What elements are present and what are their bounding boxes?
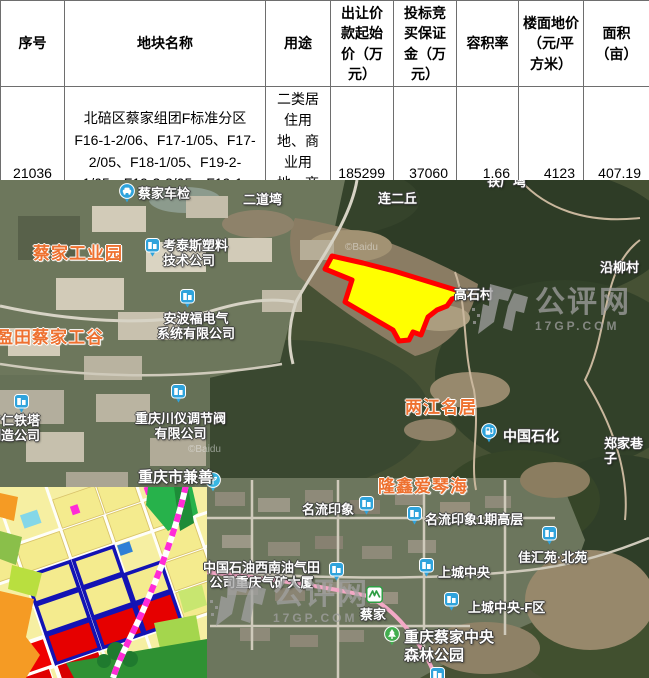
cell-plot-ratio: 1.66	[457, 87, 519, 180]
map-label: 蔡家	[360, 607, 386, 622]
cell-use: 二类居住用地、商业用地、商务用地、旅馆用地	[266, 87, 331, 180]
map-label: 重庆蔡家中央 森林公园	[404, 629, 494, 664]
map-label: 连二丘	[378, 191, 417, 206]
map-credit: ©Baidu	[345, 242, 378, 254]
land-listing-page: 序号 地块名称 用途 出让价款起始价（万元） 投标竞买保证金（万元） 容积率 楼…	[0, 0, 649, 678]
map-label: 隆鑫爱琴海	[378, 477, 468, 497]
col-area: 面积（亩）	[584, 1, 649, 87]
map-label: 蔡家工业园	[33, 244, 123, 264]
col-use: 用途	[266, 1, 331, 87]
map-label: 重庆市兼善	[138, 469, 213, 487]
planning-inset-map	[0, 487, 207, 678]
map-label: 铁厂塆	[487, 180, 526, 189]
map-label: 中国石油西南油气田 公司重庆气矿大厦	[203, 560, 320, 591]
map-label: 名流印象1期高层	[425, 512, 523, 527]
col-parcel-name: 地块名称	[65, 1, 266, 87]
col-floor-price: 楼面地价（元/平方米）	[519, 1, 584, 87]
map-label: 安波福电气 系统有限公司	[157, 311, 235, 342]
map-label: 广仁铁塔 制造公司	[0, 413, 40, 444]
map-label: 重庆川仪调节阀 有限公司	[135, 411, 226, 442]
col-serial: 序号	[1, 1, 65, 87]
gas-poi-icon	[481, 423, 497, 443]
col-start-price: 出让价款起始价（万元）	[331, 1, 394, 87]
car-poi-icon	[119, 183, 135, 203]
map-label: 佳汇苑·北苑	[518, 550, 587, 565]
building-poi-icon	[359, 496, 374, 515]
col-deposit: 投标竞买保证金（万元）	[394, 1, 457, 87]
building-poi-icon	[419, 558, 434, 577]
map-label: 二道塆	[243, 192, 282, 207]
map-label: 名流印象	[302, 502, 354, 517]
map-label: 上城中央	[438, 565, 490, 580]
map-image: 蔡家车检二道塆连二丘铁厂塆蔡家工业园考泰斯塑料 技术公司安波福电气 系统有限公司…	[0, 180, 649, 678]
building-poi-icon	[430, 667, 445, 678]
cell-serial: 21036	[1, 87, 65, 180]
map-label: 沿柳村	[600, 260, 639, 275]
map-credit: ©Baidu	[188, 444, 221, 456]
cell-parcel-name: 北碚区蔡家组团F标准分区F16-1-2/06、F17-1/05、F17-2/05…	[65, 87, 266, 180]
building-poi-icon	[407, 506, 422, 525]
col-plot-ratio: 容积率	[457, 1, 519, 87]
map-label: 考泰斯塑料 技术公司	[163, 238, 228, 269]
building-poi-icon	[542, 526, 557, 545]
map-label: 蔡家车检	[138, 186, 190, 201]
cell-area: 407.19	[584, 87, 649, 180]
metro-poi-icon	[366, 586, 383, 603]
land-parcel-table: 序号 地块名称 用途 出让价款起始价（万元） 投标竞买保证金（万元） 容积率 楼…	[0, 0, 649, 180]
table-row: 21036 北碚区蔡家组团F标准分区F16-1-2/06、F17-1/05、F1…	[1, 87, 649, 180]
building-poi-icon	[329, 562, 344, 581]
building-poi-icon	[444, 592, 459, 611]
cell-deposit: 37060	[394, 87, 457, 180]
cell-start-price: 185299	[331, 87, 394, 180]
building-poi-icon	[171, 384, 186, 403]
map-label: 盈田蔡家工谷	[0, 328, 104, 348]
building-poi-icon	[145, 238, 160, 257]
map-label: 郑家巷子	[604, 436, 649, 467]
building-poi-icon	[180, 289, 195, 308]
cell-floor-price: 4123	[519, 87, 584, 180]
land-parcel-table-wrap: 序号 地块名称 用途 出让价款起始价（万元） 投标竞买保证金（万元） 容积率 楼…	[0, 0, 649, 180]
map-label: 上城中央-F区	[468, 600, 545, 615]
map-label: 中国石化	[503, 428, 559, 445]
map-label: 两江名居	[405, 398, 477, 418]
building-poi-icon	[14, 394, 29, 413]
map-label: 高石村	[454, 287, 493, 302]
header-row: 序号 地块名称 用途 出让价款起始价（万元） 投标竞买保证金（万元） 容积率 楼…	[1, 1, 649, 87]
tree-poi-icon	[384, 626, 400, 646]
